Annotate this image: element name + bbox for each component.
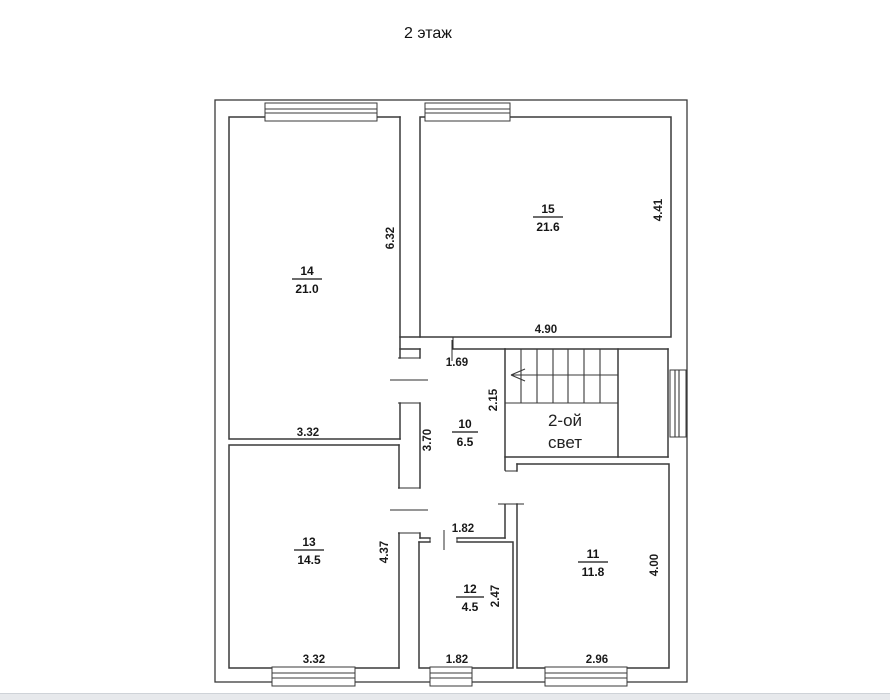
void-label-line2: свет — [548, 433, 582, 452]
dim-hall-height: 3.70 — [422, 429, 434, 451]
door-opening-room11 — [498, 471, 524, 504]
floor-plan-page: 2 этаж — [0, 0, 890, 700]
room-14-label: 14 21.0 — [292, 264, 322, 296]
dim-room12-width: 1.82 — [446, 654, 468, 666]
stair-direction-arrow-icon — [511, 369, 618, 381]
room-15-area: 21.6 — [536, 220, 560, 234]
room-12-label: 12 4.5 — [456, 582, 484, 614]
window-bottom-room12 — [430, 667, 472, 686]
room-13-label: 13 14.5 — [294, 535, 324, 567]
photo-bottom-edge — [0, 693, 890, 700]
dim-stair-depth: 2.15 — [488, 388, 500, 411]
room-13-number: 13 — [302, 535, 316, 549]
room-11-label: 11 11.8 — [578, 547, 608, 579]
room-10-area: 6.5 — [457, 435, 474, 449]
dim-hall-top-width: 1.69 — [446, 357, 468, 369]
void-label-line1: 2-ой — [548, 411, 582, 430]
window-right-stair — [670, 370, 686, 437]
dim-room15-width: 4.90 — [535, 324, 557, 336]
room-11-area: 11.8 — [582, 565, 605, 579]
dim-room14-height: 6.32 — [385, 227, 397, 249]
dim-room13-height: 4.37 — [379, 541, 391, 563]
stair-steps — [521, 349, 600, 403]
dim-room11-height: 4.00 — [649, 554, 661, 576]
dim-room12-height: 2.47 — [490, 585, 502, 607]
room-14-number: 14 — [300, 264, 314, 278]
room-10-number: 10 — [458, 417, 472, 431]
floor-plan-drawing: 2 этаж — [0, 0, 890, 700]
dim-room14-width: 3.32 — [297, 427, 319, 439]
room-12-number: 12 — [463, 582, 477, 596]
door-opening-room14 — [390, 358, 428, 403]
building-outline — [215, 100, 687, 682]
dim-room15-height: 4.41 — [653, 198, 665, 221]
door-opening-room13 — [390, 488, 428, 533]
window-top-room14 — [265, 103, 377, 121]
window-bottom-room11 — [545, 667, 627, 686]
room-12-area: 4.5 — [462, 600, 479, 614]
window-top-room15 — [425, 103, 510, 121]
stairwell-void-label: 2-ой свет — [548, 411, 582, 452]
room-15-number: 15 — [541, 202, 555, 216]
dim-room11-width: 2.96 — [586, 654, 608, 666]
staircase — [505, 349, 668, 457]
dim-room13-width: 3.32 — [303, 654, 325, 666]
window-bottom-room13 — [272, 667, 355, 686]
room-10-label: 10 6.5 — [452, 417, 478, 449]
room-14-walls — [229, 117, 400, 439]
dim-hall-bottom-width: 1.82 — [452, 523, 474, 535]
room-11-number: 11 — [587, 547, 600, 561]
room-13-area: 14.5 — [297, 553, 321, 567]
room-14-area: 21.0 — [295, 282, 319, 296]
page-title: 2 этаж — [404, 25, 452, 42]
room-15-label: 15 21.6 — [533, 202, 563, 234]
